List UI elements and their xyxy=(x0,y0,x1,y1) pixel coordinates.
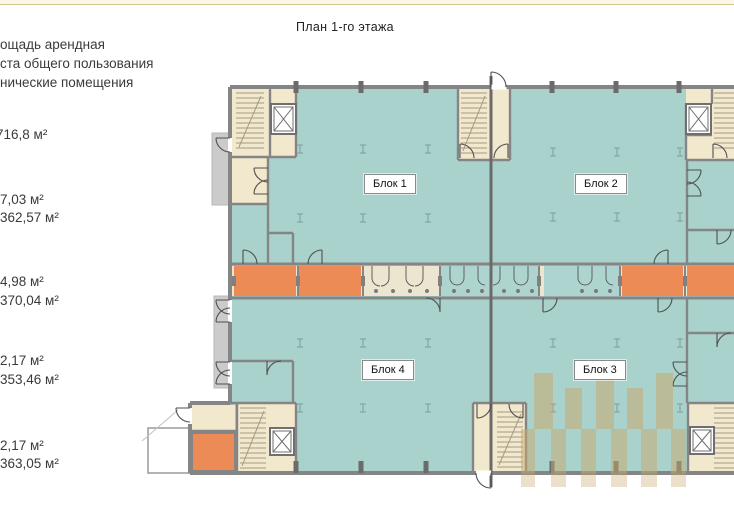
entrance-canopy xyxy=(142,410,192,473)
block-label-1: Блок 1 xyxy=(364,174,416,194)
block-label-3: Блок 3 xyxy=(574,360,626,380)
porch xyxy=(212,133,230,388)
technical-room xyxy=(192,433,235,471)
block-label-2: Блок 2 xyxy=(575,174,627,194)
page-root: План 1-го этажа ощадь арендная ста общег… xyxy=(0,0,734,523)
block-label-4: Блок 4 xyxy=(362,360,414,380)
floor-plan xyxy=(0,0,734,523)
